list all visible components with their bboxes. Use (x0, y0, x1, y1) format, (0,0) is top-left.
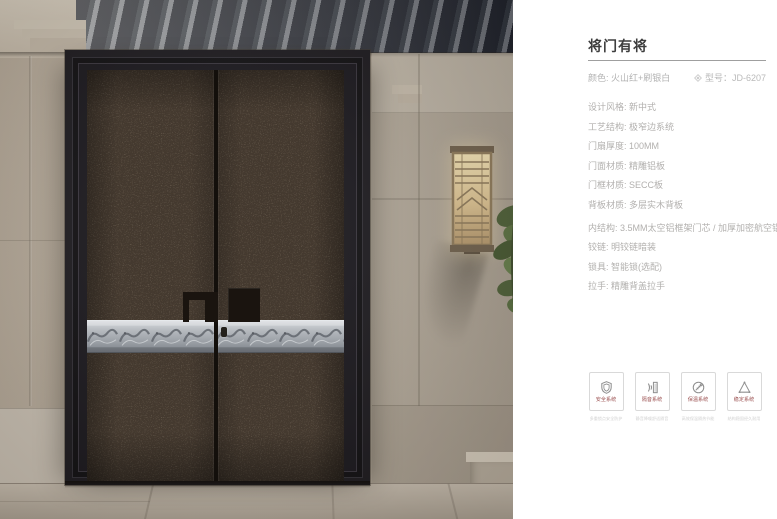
spec-row: 铰链: 明铰链暗装 (588, 238, 766, 258)
door-handle-right (228, 288, 260, 322)
product-title: 将门有将 (588, 36, 648, 56)
insulation-icon (691, 380, 706, 395)
feature-insulation: 保温系统 高效保温隔热节能 (680, 372, 716, 424)
feature-icons-row: 安全系统 多重锁点安全防护 隔音系统 静音降噪舒适隔音 (588, 372, 762, 424)
feature-label: 隔音系统 (642, 396, 662, 403)
door-center-gap (214, 70, 218, 481)
spec-list: 设计风格: 新中式 工艺结构: 极窄边系统 门扇厚度: 100MM 门面材质: … (588, 98, 766, 297)
feature-box: 安全系统 (589, 372, 624, 411)
door-threshold-shadow (65, 481, 370, 488)
stability-icon (737, 380, 752, 395)
meta-row: 颜色: 火山红+刷银白 型号：JD-6207 (588, 71, 766, 84)
feature-caption: 高效保温隔热节能 (678, 415, 719, 421)
spec-row: 门扇厚度: 100MM (588, 137, 766, 157)
color-spec: 颜色: 火山红+刷银白 (588, 71, 670, 84)
lock-keyhole (221, 327, 227, 337)
door-handle-left (183, 292, 218, 322)
spec-row: 工艺结构: 极窄边系统 (588, 118, 766, 138)
door-leaves (87, 70, 344, 481)
feature-stability: 稳定系统 结构稳固经久耐用 (726, 372, 762, 424)
spec-row: 门面材质: 精雕铝板 (588, 157, 766, 177)
model-number: 型号：JD-6207 (694, 71, 766, 84)
spec-row: 内结构: 3.5MM太空铝框架门芯 / 加厚加密航空铝箔 (588, 219, 766, 239)
feature-box: 保温系统 (681, 372, 716, 411)
feature-soundproof: 隔音系统 静音降噪舒适隔音 (634, 372, 670, 424)
feature-caption: 多重锁点安全防护 (586, 415, 627, 421)
door-frame (65, 50, 370, 485)
spec-panel: 将门有将 颜色: 火山红+刷银白 型号：JD-6207 设计风格: 新中式 工艺… (513, 0, 777, 519)
spec-row: 拉手: 精雕背盖拉手 (588, 277, 766, 297)
feature-label: 安全系统 (596, 396, 616, 403)
spec-row: 设计风格: 新中式 (588, 98, 766, 118)
catalog-page: 将门有将 颜色: 火山红+刷银白 型号：JD-6207 设计风格: 新中式 工艺… (0, 0, 777, 519)
door-scene-photo (0, 0, 513, 519)
feature-caption: 静音降噪舒适隔音 (632, 415, 673, 421)
model-number-text: 型号：JD-6207 (705, 71, 766, 84)
spec-row: 门框材质: SECC板 (588, 176, 766, 196)
feature-label: 稳定系统 (734, 396, 754, 403)
feature-safety: 安全系统 多重锁点安全防护 (588, 372, 624, 424)
soundproof-icon (645, 380, 660, 395)
feature-label: 保温系统 (688, 396, 708, 403)
brand-diamond-icon (694, 74, 702, 82)
title-divider (588, 60, 766, 61)
feature-box: 稳定系统 (727, 372, 762, 411)
spec-row: 背板材质: 多层实木背板 (588, 196, 766, 216)
spec-row: 锁具: 智能锁(选配) (588, 258, 766, 278)
feature-box: 隔音系统 (635, 372, 670, 411)
spec-panel-content: 将门有将 颜色: 火山红+刷银白 型号：JD-6207 设计风格: 新中式 工艺… (588, 0, 766, 519)
shield-icon (599, 380, 614, 395)
feature-caption: 结构稳固经久耐用 (724, 415, 765, 421)
